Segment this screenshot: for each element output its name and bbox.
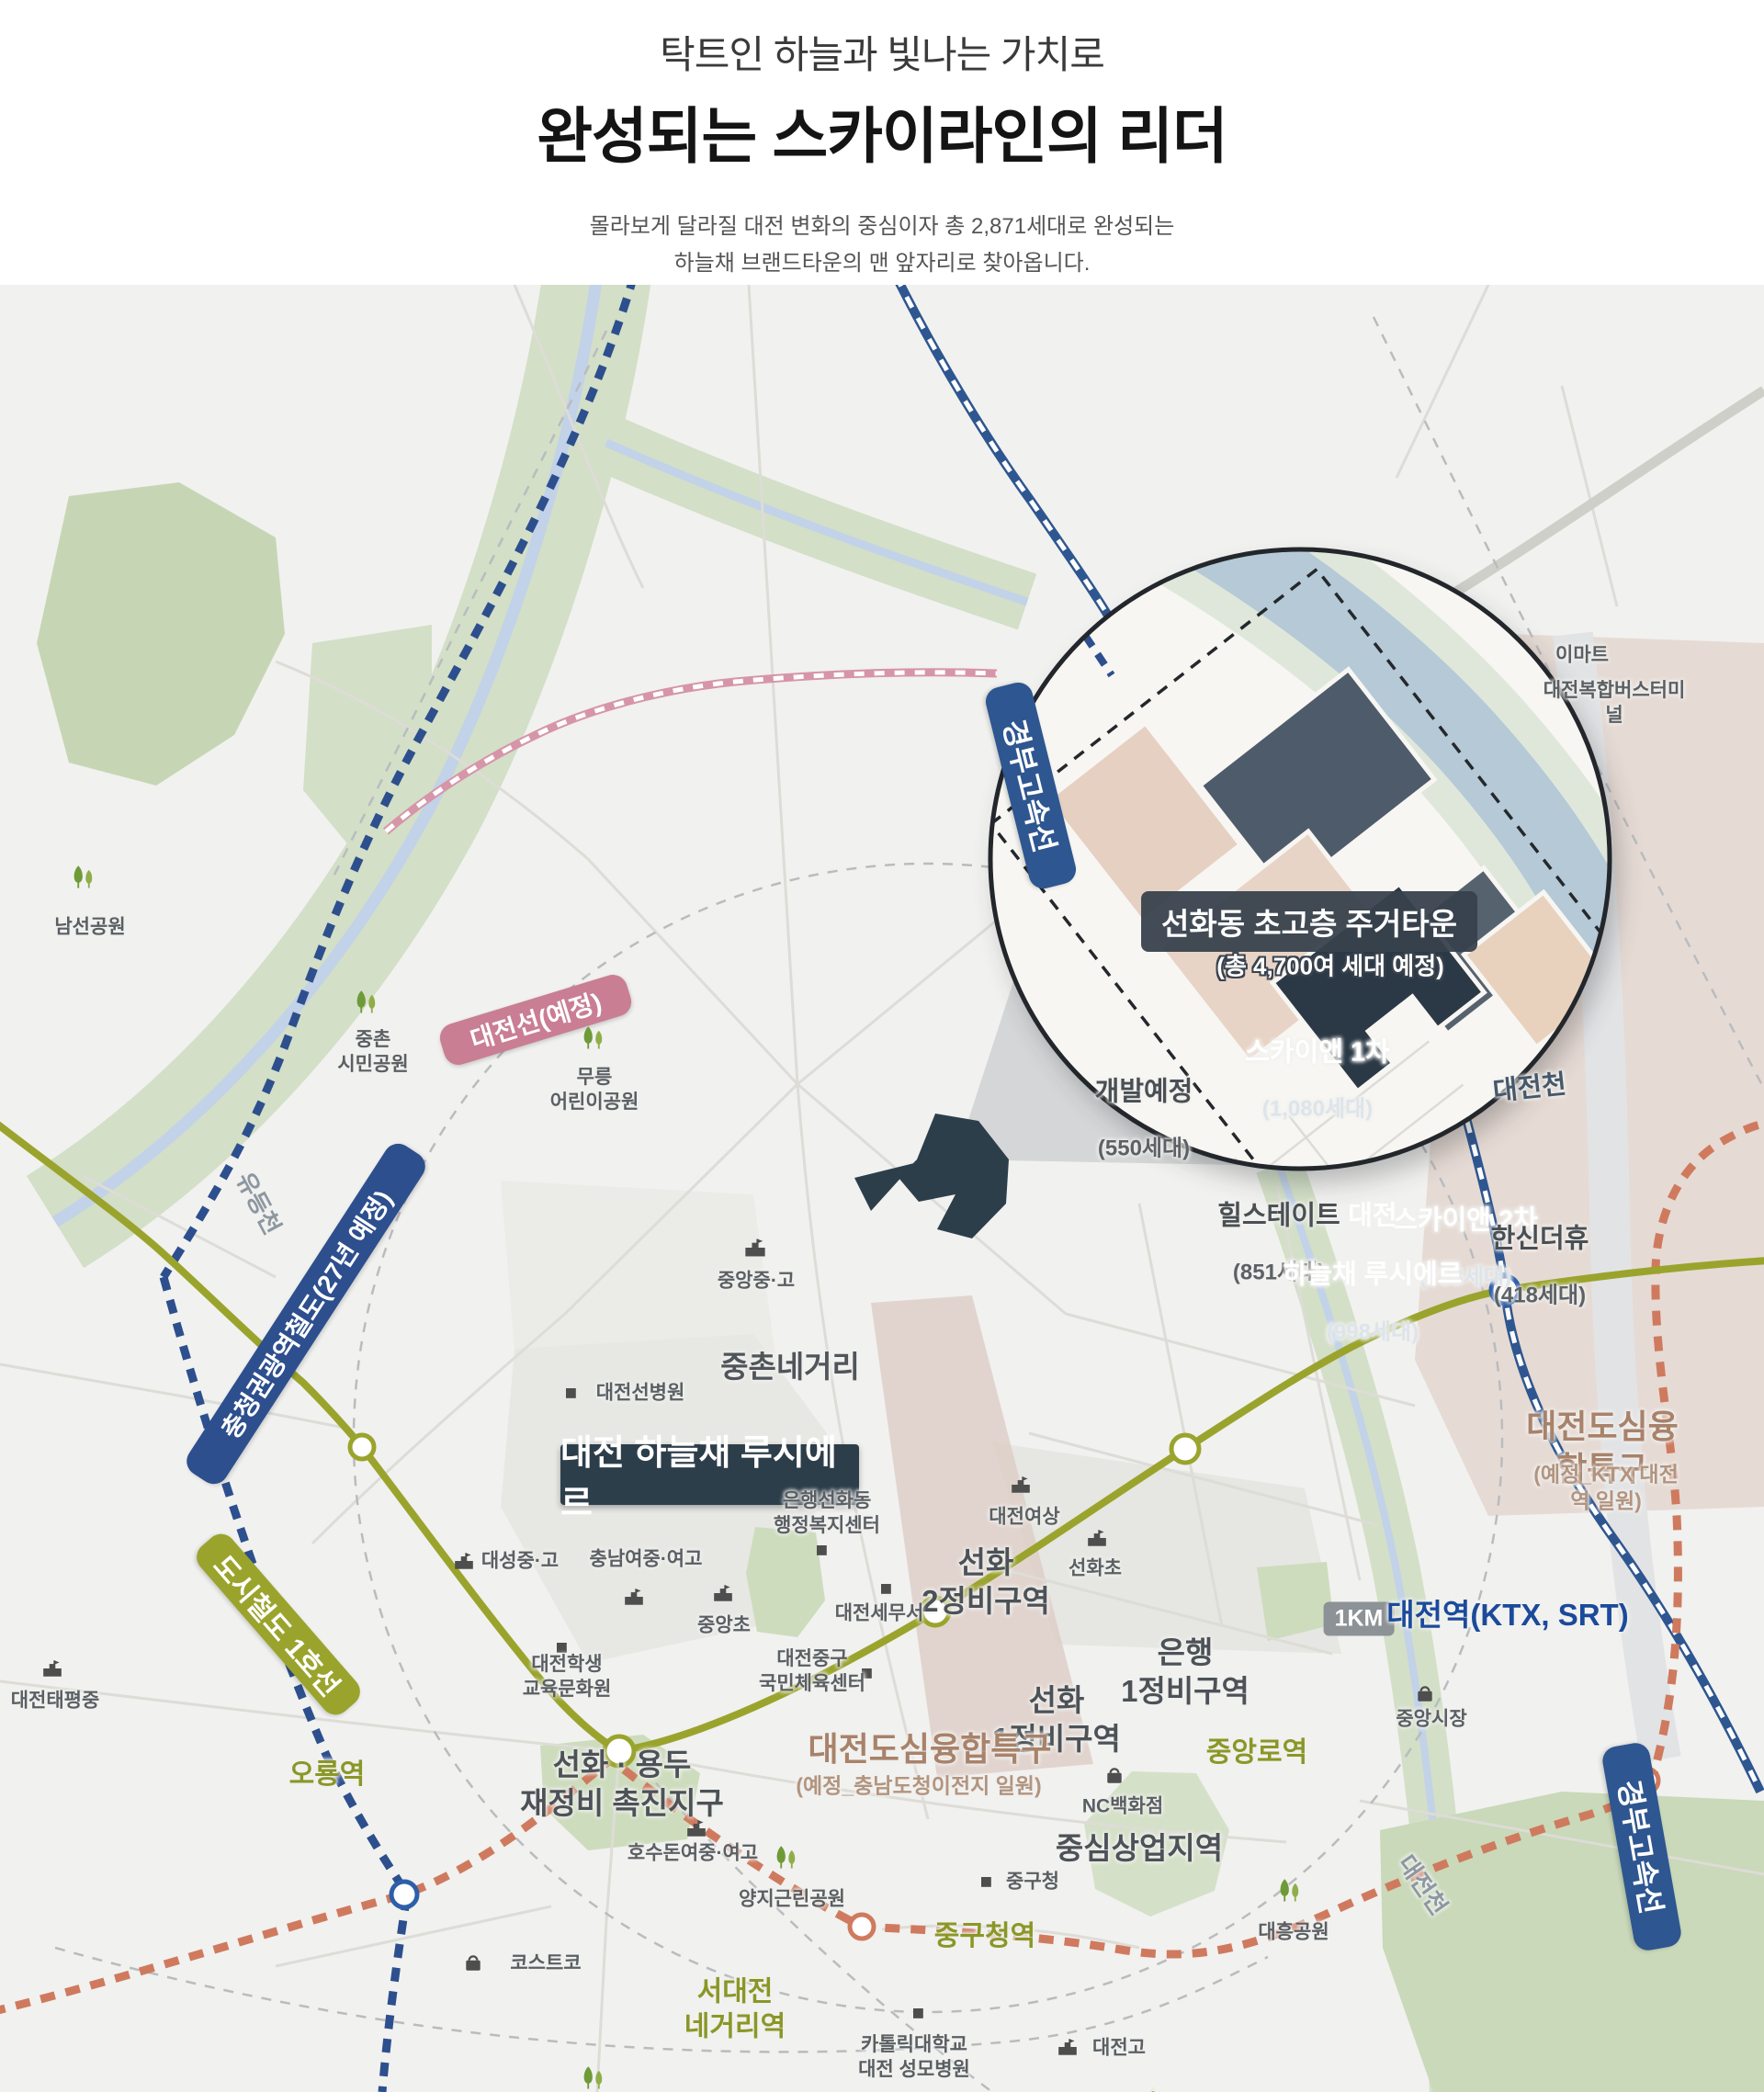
trees-icon [580, 2066, 607, 2090]
zone-label-dosim-center-sub: (예정_충남도청이전지 일원) [796, 1772, 1041, 1799]
page: 탁트인 하늘과 빛나는 가치로 완성되는 스카이라인의 리더 몰라보게 달라질 … [0, 0, 1764, 2092]
label-daeheung-park: 대흥공원 [1258, 1921, 1329, 1946]
label-jungang-market: 중앙시장 [1396, 1708, 1466, 1733]
header-subtitle-2: 하늘채 브랜드타운의 맨 앞자리로 찾아옵니다. [0, 253, 1764, 275]
label-taepyeong-mid: 대전태평중 [11, 1690, 100, 1714]
trees-icon [70, 865, 97, 889]
label-emart: 이마트 [1555, 644, 1609, 669]
school-icon [623, 1588, 645, 1606]
location-map: 경부고속선 경부고속선 대전선(예정) 충청권광역철도(27년 예정) 도시철도… [0, 285, 1764, 2092]
label-namseon-park: 남선공원 [54, 916, 125, 941]
building-icon [881, 1584, 892, 1595]
jungangno-station-circle [1171, 1435, 1199, 1463]
label-student-center: 대전학생 교육문화원 [523, 1653, 612, 1702]
header-eyebrow: 탁트인 하늘과 빛나는 가치로 [0, 24, 1764, 80]
label-chungnam-girls: 충남여중·여고 [590, 1548, 703, 1573]
inset-parcel-hanshin: 한신더휴 (418세대) [1491, 1198, 1589, 1311]
shop-icon [1104, 1766, 1125, 1784]
label-tax-office: 대전세무서 [835, 1602, 924, 1627]
label-jungchon-park: 중촌 시민공원 [337, 1028, 408, 1078]
inset-subtitle: (총 4,700여 세대 예정) [1216, 948, 1444, 982]
station-label-seodaejeon-negeori: 서대전 네거리역 [684, 1975, 786, 2046]
label-daejeon-high: 대전고 [1092, 2037, 1146, 2062]
zone-label-eunhaeng1: 은행 1정비구역 [1121, 1634, 1249, 1711]
label-bus-terminal: 대전복합버스터미널 [1540, 679, 1690, 729]
shop-icon [463, 1953, 483, 1972]
zone-label-dosim-right-sub: (예정_KTX 대전역 일원) [1527, 1462, 1685, 1516]
school-icon [712, 1584, 734, 1602]
station-label-junggucheong: 중구청역 [934, 1919, 1035, 1954]
tram-hospital-station-circle [850, 1915, 874, 1939]
building-icon [817, 1545, 828, 1556]
label-catholic-hosp: 카톨릭대학교 대전 성모병원 [858, 2033, 970, 2083]
label-mureung-park: 무릉 어린이공원 [550, 1066, 639, 1115]
label-yangji-park: 양지근린공원 [739, 1888, 845, 1913]
inset-parcel-sky1: 스카이앤 1차 (1,080세대) [1245, 1012, 1390, 1125]
seodaejeon-station-circle [391, 1882, 417, 1907]
label-sports-center: 대전중구 국민체육센터 [759, 1647, 865, 1697]
school-icon [1086, 1529, 1108, 1547]
hospital-icon [913, 2008, 924, 2019]
shop-icon [1415, 1684, 1435, 1702]
trees-icon [773, 1846, 800, 1870]
label-gu-office: 중구청 [1006, 1871, 1059, 1895]
zone-label-seonhwa2: 선화 2정비구역 [922, 1544, 1050, 1621]
page-title: 완성되는 스카이라인의 리더 [0, 87, 1764, 175]
station-label-jungangno: 중앙로역 [1206, 1736, 1307, 1770]
school-icon [453, 1552, 475, 1570]
zone-label-commercial: 중심상업지역 [1056, 1829, 1223, 1868]
label-eunhaeng-center: 은행선화동 행정복지센터 [774, 1489, 880, 1539]
hospital-icon [566, 1388, 577, 1399]
label-jungang-mid: 중앙중·고 [718, 1270, 795, 1295]
label-jungang-elem: 중앙초 [697, 1614, 751, 1639]
school-icon [1010, 1476, 1032, 1494]
label-daejeonsun-hosp: 대전선병원 [596, 1382, 685, 1407]
inset-parcel-lucierre: 대전 하늘채 루시에르 (998세대) [1283, 1174, 1463, 1346]
station-label-daejeon: 대전역(KTX, SRT) [1386, 1596, 1628, 1634]
trees-icon [1276, 1879, 1304, 1903]
school-icon [1057, 2038, 1079, 2056]
zone-label-dosim-center: 대전도심융합특구 [808, 1728, 1052, 1770]
mountain-icon [1139, 2086, 1167, 2092]
hanwha-ballpark-shape [1380, 1792, 1764, 2092]
label-hosudon: 호수돈여중·여고 [628, 1842, 758, 1867]
label-costco: 코스트코 [510, 1952, 581, 1977]
distance-badge: 1KM [1324, 1602, 1395, 1636]
school-icon [685, 1819, 707, 1838]
label-jungchon-crossing: 중촌네거리 [720, 1348, 860, 1386]
label-daejeon-yeosang: 대전여상 [989, 1506, 1059, 1531]
trees-icon [353, 990, 380, 1014]
zone-label-seonhwa-yongdu: 선화 · 용두 재정비 촉진지구 [520, 1746, 724, 1823]
inset-parcel-dev: 개발예정 (550세대) [1095, 1051, 1193, 1164]
building-icon [981, 1877, 992, 1888]
oryong-station-circle [350, 1435, 374, 1459]
header-subtitle-1: 몰라보게 달라질 대전 변화의 중심이자 총 2,871세대로 완성되는 [0, 216, 1764, 238]
school-icon [743, 1238, 767, 1258]
trees-icon [580, 1026, 607, 1050]
label-nc-dept: NC백화점 [1082, 1795, 1163, 1820]
station-label-oryong: 오룡역 [289, 1758, 366, 1792]
school-icon [41, 1659, 63, 1678]
inset-title: 선화동 초고층 주거타운 [1141, 891, 1477, 952]
header: 탁트인 하늘과 빛나는 가치로 완성되는 스카이라인의 리더 몰라보게 달라질 … [0, 0, 1764, 285]
label-seonhwa-elem: 선화초 [1069, 1557, 1122, 1582]
label-daeseong-mid: 대성중·고 [481, 1550, 559, 1575]
